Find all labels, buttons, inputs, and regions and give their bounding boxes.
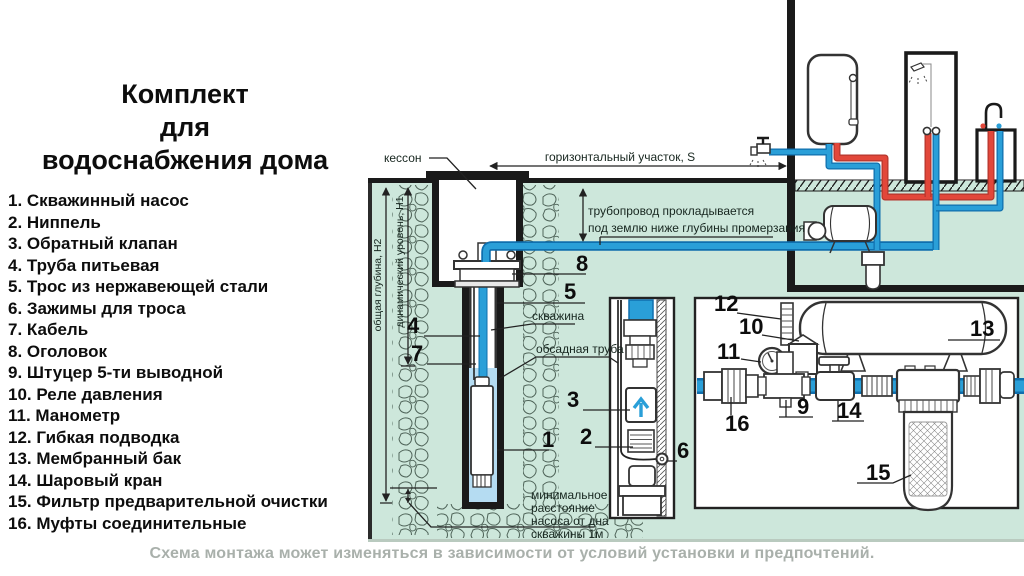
caisson-lid xyxy=(426,171,529,180)
legend-item-15: 15. Фильтр предварительной очистки xyxy=(8,491,370,513)
label-casing-pipe: обсадная труба xyxy=(536,342,624,356)
label-kesson: кессон xyxy=(384,151,422,165)
label-pipeline-note-1: трубопровод прокладывается xyxy=(588,204,754,218)
nipple-detail xyxy=(628,430,654,452)
drinking-pipe xyxy=(479,285,487,383)
callout-8: 8 xyxy=(576,251,588,276)
label-min-distance-3: насоса от дна xyxy=(531,514,609,528)
callout-1: 1 xyxy=(542,427,554,452)
well-shaft xyxy=(462,285,504,509)
ball-valve xyxy=(816,357,854,400)
basement-filter-bowl xyxy=(866,265,880,289)
infographic-canvas: кессон горизонтальный участок, S трубопр… xyxy=(0,0,1024,576)
submersible-pump xyxy=(471,377,493,487)
legend-item-13: 13. Мембранный бак xyxy=(8,448,370,470)
callout-15: 15 xyxy=(866,460,890,485)
sink-pedestal xyxy=(977,130,1015,181)
heater-valve-icon xyxy=(850,75,857,82)
label-total-depth: общая глубина, Н2 xyxy=(372,238,384,331)
callout-10: 10 xyxy=(739,314,763,339)
legend-item-2: 2. Ниппель xyxy=(8,212,370,234)
page-title-line-2: для xyxy=(10,111,360,144)
legend-item-8: 8. Оголовок xyxy=(8,341,370,363)
label-horizontal-section: горизонтальный участок, S xyxy=(545,150,695,164)
legend-item-11: 11. Манометр xyxy=(8,405,370,427)
pipe-detail xyxy=(629,300,653,320)
outdoor-faucet-icon xyxy=(750,138,770,167)
legend-item-12: 12. Гибкая подводка xyxy=(8,427,370,449)
label-min-distance-2: расстояние xyxy=(531,501,595,515)
label-well: скважина xyxy=(532,309,585,323)
legend-item-1: 1. Скважинный насос xyxy=(8,190,370,212)
label-dynamic-level: динамический уровень, Н1 xyxy=(394,196,406,327)
legend-item-16: 16. Муфты соединительные xyxy=(8,513,370,535)
legend-item-7: 7. Кабель xyxy=(8,319,370,341)
callout-5: 5 xyxy=(564,279,576,304)
legend-item-4: 4. Труба питьевая xyxy=(8,255,370,277)
callout-11: 11 xyxy=(717,339,740,364)
cable-clamp-detail xyxy=(657,454,668,465)
page-title: Комплект для водоснабжения дома xyxy=(10,78,360,177)
basement-floor xyxy=(787,285,1024,292)
check-valve-detail xyxy=(626,388,656,422)
callout-2: 2 xyxy=(580,424,592,449)
water-heater xyxy=(808,55,857,144)
callout-3: 3 xyxy=(567,387,579,412)
callout-12: 12 xyxy=(714,291,738,316)
callout-13: 13 xyxy=(970,316,994,341)
coupling-mid xyxy=(862,376,892,396)
legend-item-9: 9. Штуцер 5-ти выводной xyxy=(8,362,370,384)
pre-filter xyxy=(897,366,959,510)
basement-filter-head xyxy=(862,252,884,265)
callout-7: 7 xyxy=(411,341,423,366)
casing-wall-hatched xyxy=(657,300,666,516)
legend-item-14: 14. Шаровый кран xyxy=(8,470,370,492)
callout-4: 4 xyxy=(407,313,420,338)
legend-item-5: 5. Трос из нержавеющей стали xyxy=(8,276,370,298)
page-title-line-3: водоснабжения дома xyxy=(10,144,360,177)
legend-item-3: 3. Обратный клапан xyxy=(8,233,370,255)
components-legend: 1. Скважинный насос 2. Ниппель 3. Обратн… xyxy=(8,190,370,534)
legend-item-6: 6. Зажимы для троса xyxy=(8,298,370,320)
callout-6: 6 xyxy=(677,438,689,463)
label-min-distance-4: скважины 1м xyxy=(531,527,603,541)
pump-detail-panel xyxy=(610,298,674,518)
footer-note: Схема монтажа может изменяться в зависим… xyxy=(0,545,1024,563)
page-title-line-1: Комплект xyxy=(10,78,360,111)
legend-item-10: 10. Реле давления xyxy=(8,384,370,406)
callout-9: 9 xyxy=(797,394,809,419)
label-min-distance-1: минимальное xyxy=(531,488,608,502)
callout-16: 16 xyxy=(725,411,749,436)
callout-14: 14 xyxy=(837,398,862,423)
label-pipeline-note-2: под землю ниже глубины промерзания xyxy=(588,221,805,235)
